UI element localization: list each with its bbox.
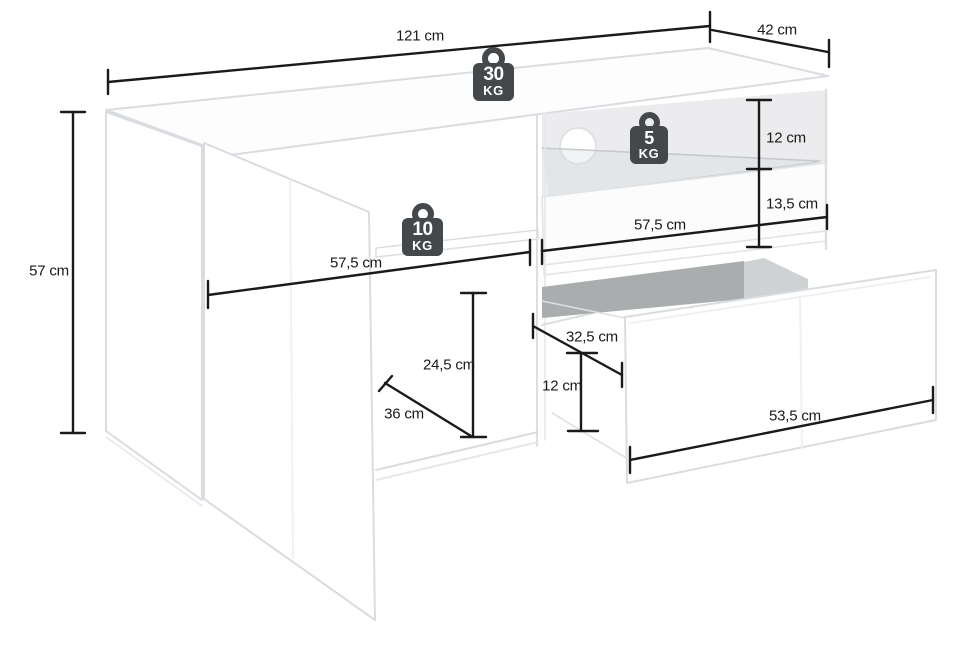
dim-label-below-glass-clearance: 13,5 cm xyxy=(766,196,818,213)
dim-label-drawer-height: 12 cm xyxy=(542,378,582,395)
weight-value: 30 xyxy=(473,66,514,84)
dim-label-right-compartment-width: 57,5 cm xyxy=(634,217,686,234)
dim-label-left-compartment-width: 57,5 cm xyxy=(330,255,382,272)
left-door-open xyxy=(106,112,202,500)
weight-value: 5 xyxy=(630,129,668,147)
dim-label-drawer-width: 53,5 cm xyxy=(769,408,821,425)
weight-badge-left-shelf: 10 KG xyxy=(402,203,443,256)
left-shelf xyxy=(376,230,538,257)
dim-label-width-overall: 121 cm xyxy=(396,28,444,45)
dim-label-left-compartment-height: 24,5 cm xyxy=(423,357,475,374)
weight-unit: KG xyxy=(630,147,668,160)
dim-label-glass-shelf-clearance: 12 cm xyxy=(766,130,806,147)
dim-label-depth-overall: 42 cm xyxy=(757,22,797,39)
weight-badge-glass-shelf: 5 KG xyxy=(630,112,668,164)
dim-label-height-overall: 57 cm xyxy=(29,263,69,280)
open-doors xyxy=(106,112,375,620)
weight-unit: KG xyxy=(402,239,443,252)
weight-value: 10 xyxy=(402,221,443,239)
dim-label-left-compartment-depth: 36 cm xyxy=(384,406,424,423)
weight-unit: KG xyxy=(473,84,514,97)
dimension-diagram: 121 cm 42 cm 57 cm 12 cm 13,5 cm 57,5 cm… xyxy=(0,0,960,667)
dim-label-drawer-depth: 32,5 cm xyxy=(566,329,618,346)
weight-badge-top-surface: 30 KG xyxy=(473,47,514,101)
